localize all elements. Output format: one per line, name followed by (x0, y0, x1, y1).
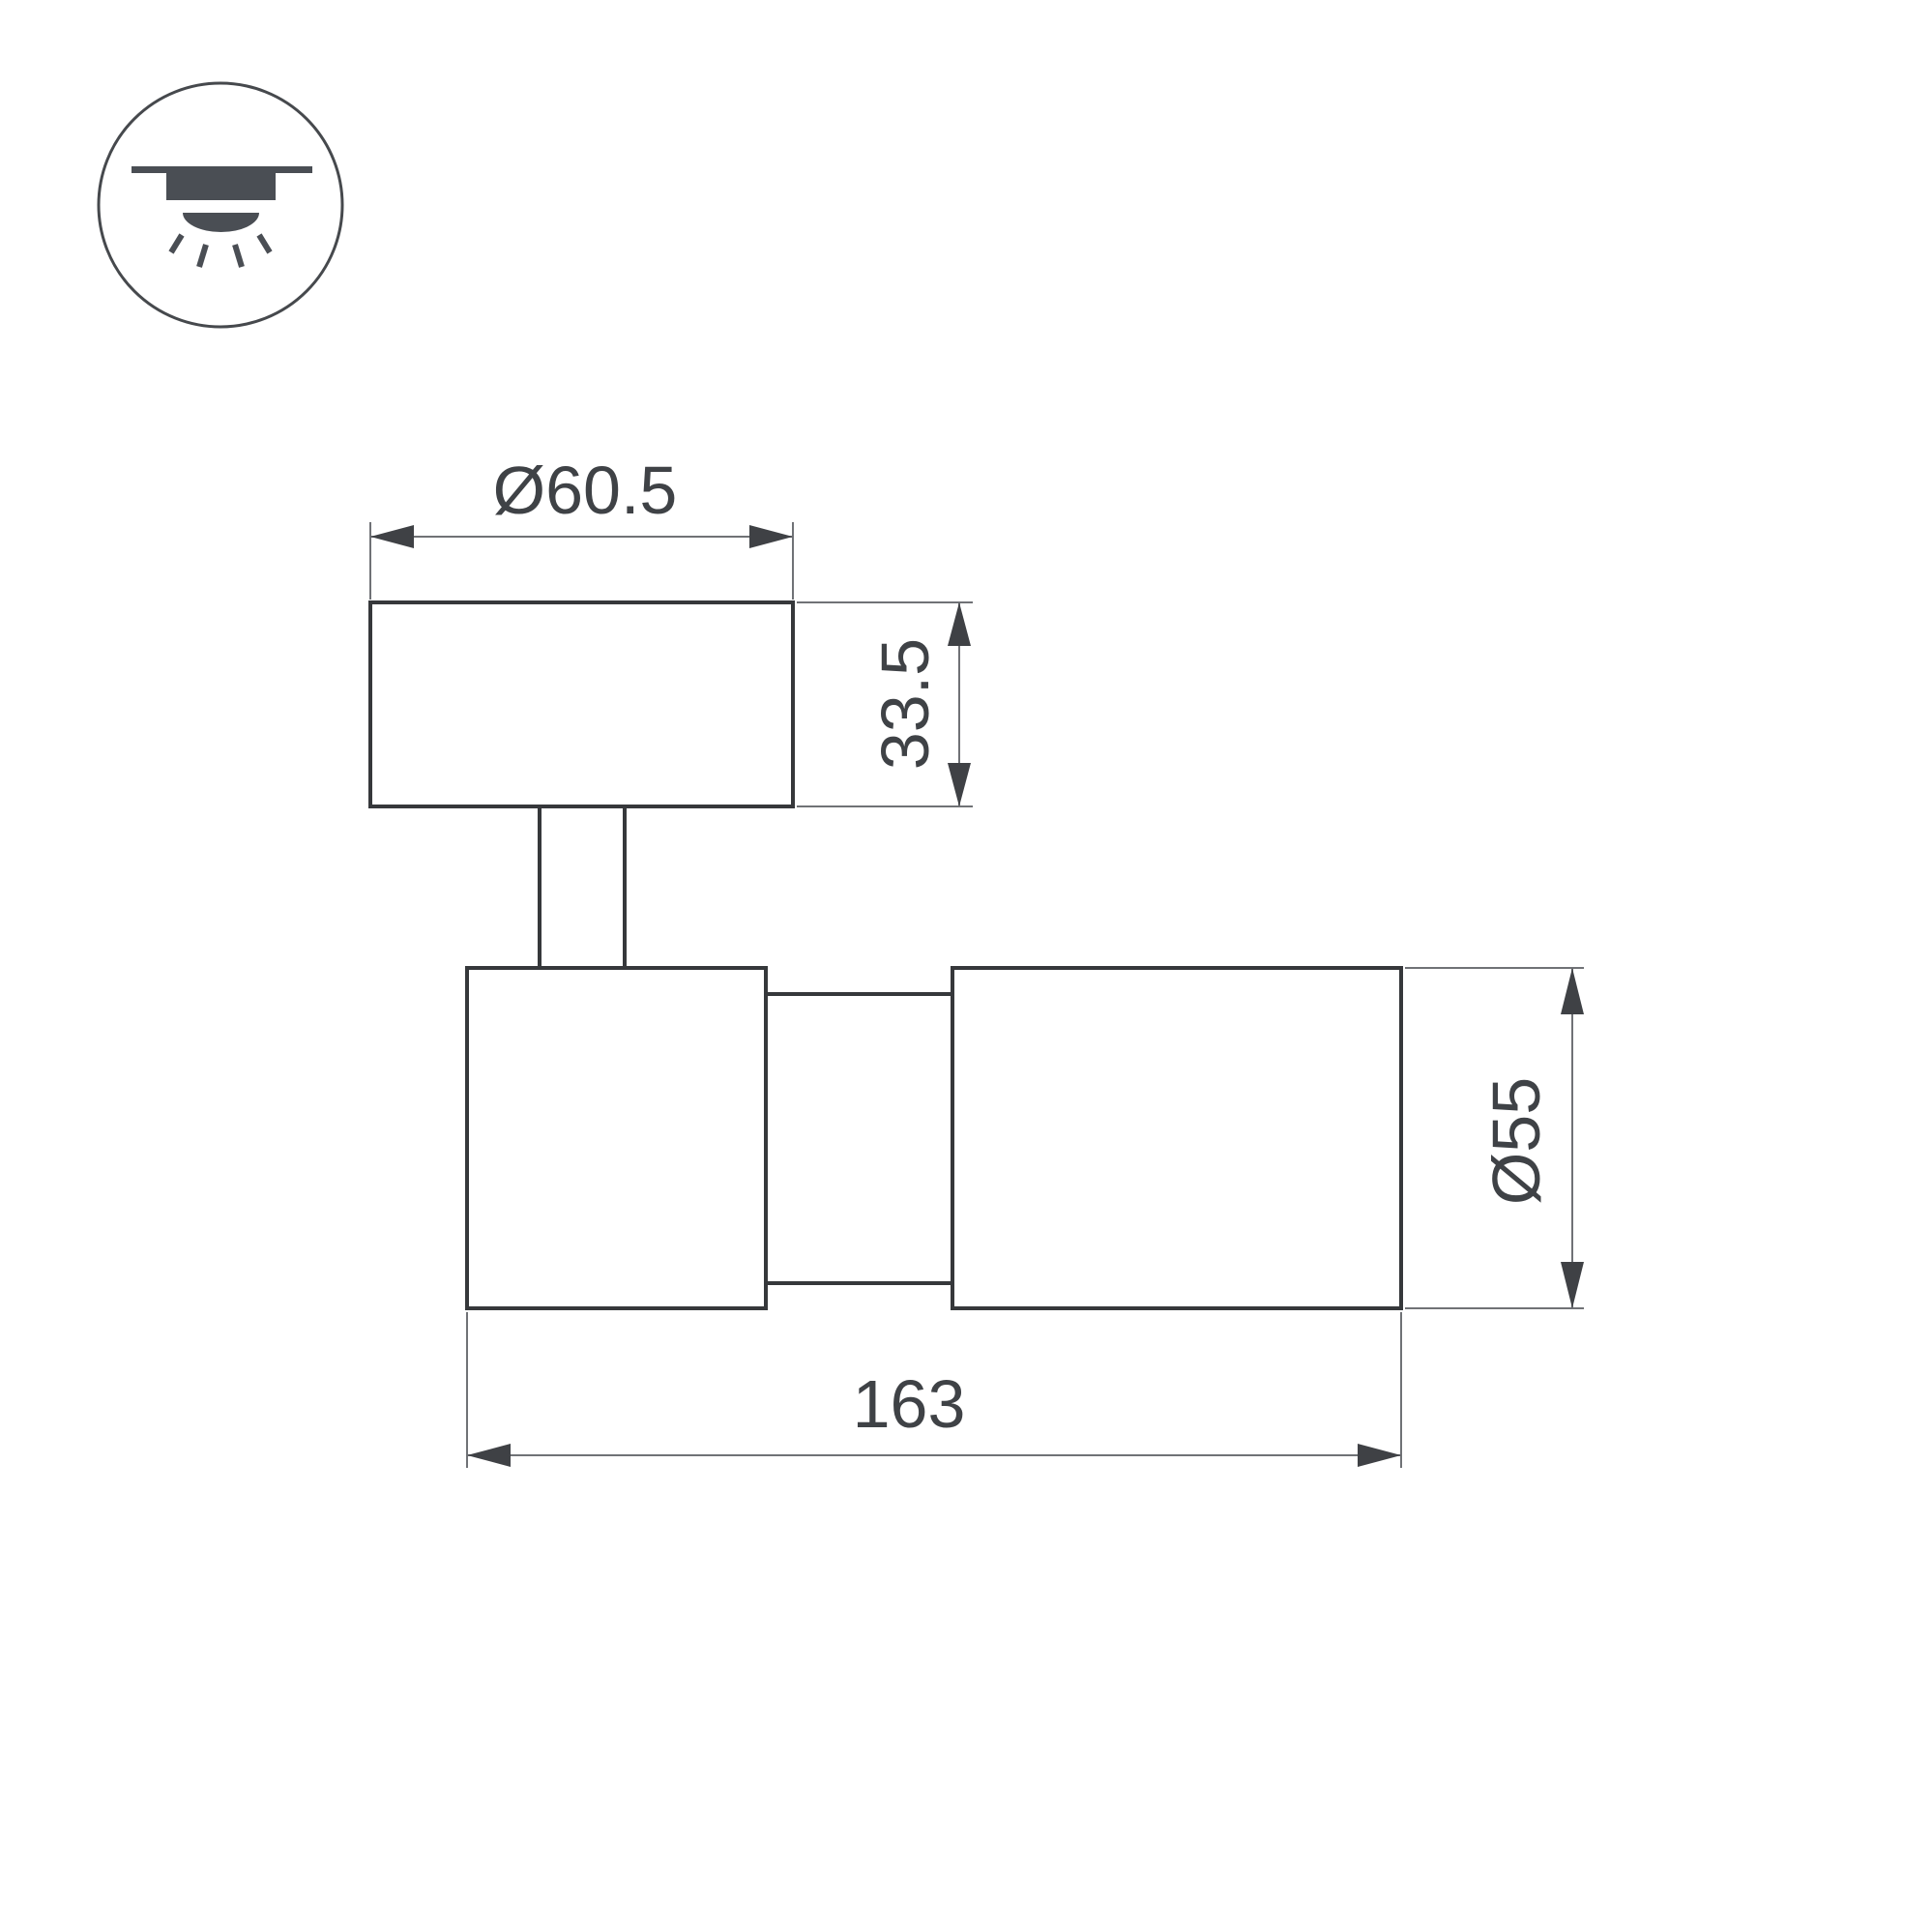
luminaire-dimension-drawing: Ø60.5 33.5 Ø55 (0, 0, 1932, 1932)
body-connector-outline (766, 994, 952, 1283)
body-front-outline (952, 968, 1401, 1308)
icon-circle (99, 83, 342, 327)
dimension-label-head-height: 33.5 (867, 638, 943, 770)
body-rear-outline (467, 968, 766, 1308)
dimension-label-overall-length: 163 (853, 1366, 966, 1442)
dimension-label-head-diameter: Ø60.5 (493, 453, 678, 528)
ceiling-light-icon (99, 83, 342, 327)
dimension-label-body-diameter: Ø55 (1478, 1077, 1554, 1205)
lamp-housing (166, 166, 276, 200)
technical-drawing-page: Ø60.5 33.5 Ø55 (0, 0, 1932, 1932)
mount-base-outline (370, 602, 793, 806)
